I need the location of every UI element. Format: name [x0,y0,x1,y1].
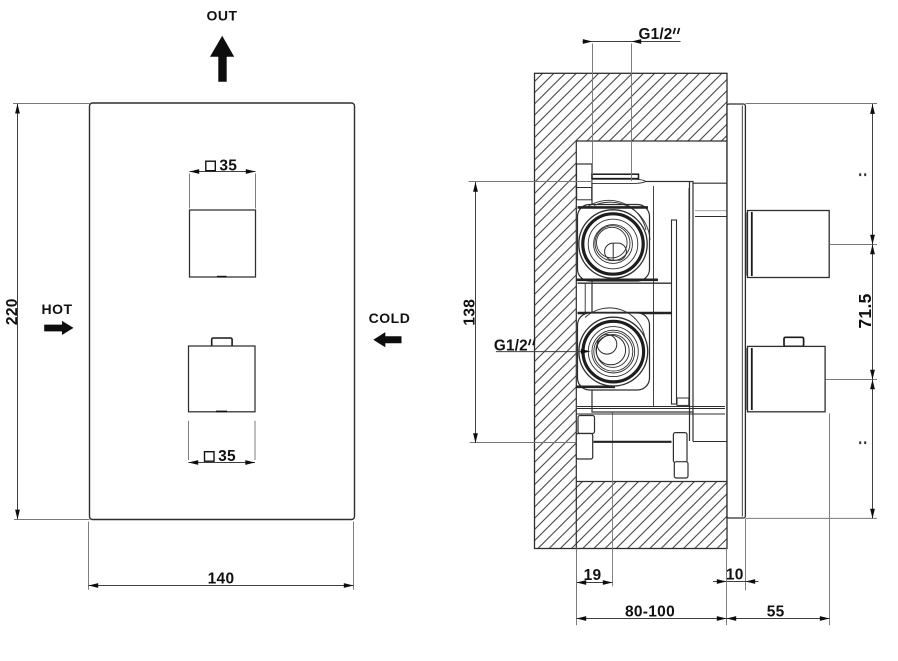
svg-text:80-100: 80-100 [625,604,675,621]
svg-text:35: 35 [219,158,237,175]
svg-text:138: 138 [461,299,478,326]
svg-text:140: 140 [208,571,235,588]
svg-text:COLD: COLD [369,310,411,326]
svg-text:55: 55 [767,604,785,621]
svg-text:19: 19 [584,567,602,584]
svg-text:G1/2: G1/2 [639,26,673,43]
svg-text:10: 10 [726,567,744,584]
svg-text:HOT: HOT [41,301,72,317]
svg-text:OUT: OUT [206,7,237,23]
svg-text:220: 220 [4,298,21,325]
svg-text:71.5: 71.5 [855,293,875,328]
svg-text:35: 35 [218,448,236,465]
